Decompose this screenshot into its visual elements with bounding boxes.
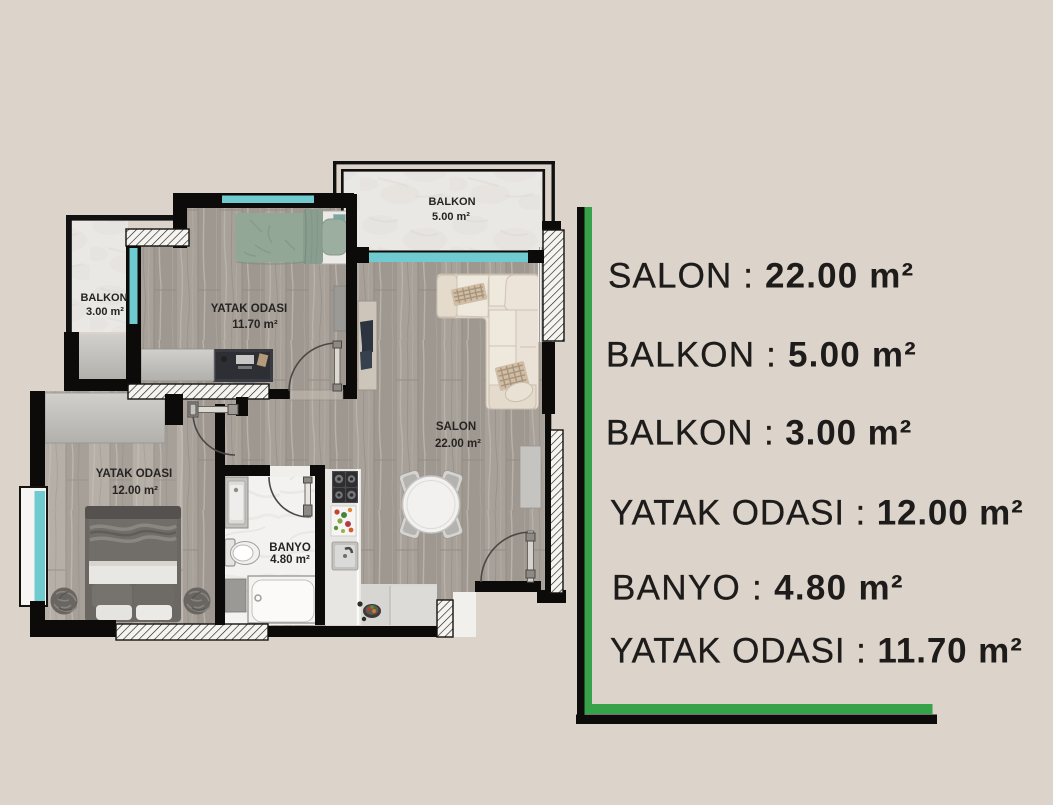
svg-text:YATAK ODASI : 12.00 m²: YATAK ODASI : 12.00 m²: [610, 494, 1024, 533]
svg-text:BALKON : 3.00 m²: BALKON : 3.00 m²: [606, 414, 912, 453]
svg-text:3.00 m²: 3.00 m²: [86, 306, 124, 318]
svg-text:11.70 m²: 11.70 m²: [232, 319, 278, 331]
svg-text:BALKON: BALKON: [428, 196, 475, 208]
svg-text:BALKON: BALKON: [80, 292, 127, 304]
svg-text:12.00 m²: 12.00 m²: [112, 485, 158, 497]
svg-text:YATAK ODASI: YATAK ODASI: [211, 303, 287, 315]
svg-text:YATAK ODASI : 11.70 m²: YATAK ODASI : 11.70 m²: [610, 632, 1023, 671]
svg-text:BALKON : 5.00 m²: BALKON : 5.00 m²: [606, 336, 917, 375]
svg-text:SALON: SALON: [436, 421, 476, 433]
svg-text:4.80 m²: 4.80 m²: [270, 554, 310, 566]
svg-text:BANYO: BANYO: [269, 542, 311, 554]
svg-text:5.00 m²: 5.00 m²: [432, 211, 470, 223]
svg-text:BANYO : 4.80 m²: BANYO : 4.80 m²: [612, 569, 904, 608]
svg-text:YATAK ODASI: YATAK ODASI: [96, 468, 172, 480]
svg-text:SALON : 22.00 m²: SALON : 22.00 m²: [608, 257, 914, 296]
svg-text:22.00 m²: 22.00 m²: [435, 438, 481, 450]
